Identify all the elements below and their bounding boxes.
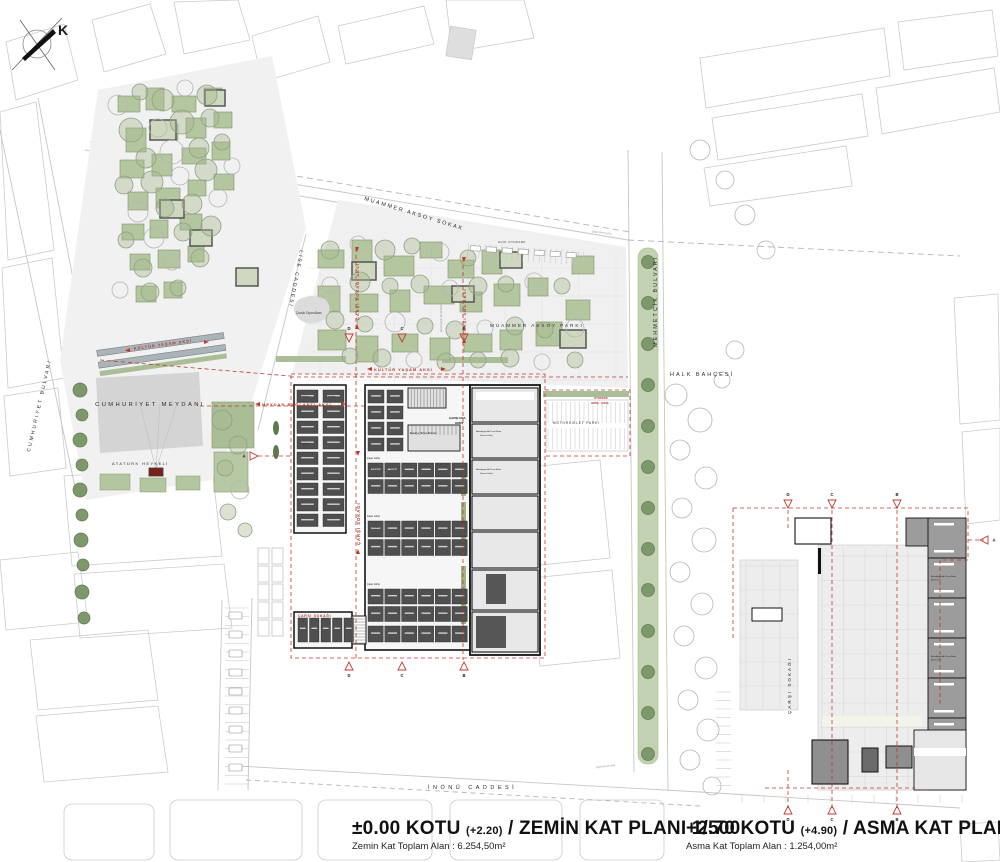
section-marker-icon	[398, 662, 406, 670]
tree-icon	[735, 205, 755, 225]
tree-icon	[417, 318, 433, 334]
caption-zemin-title: ±0.00 KOTU (+2.20) / ZEMİN KAT PLANI 1/5…	[352, 818, 740, 840]
place-label-oyun-alani: Çocuk Oyun Alanı	[296, 311, 322, 315]
section-marker-icon	[250, 452, 258, 460]
tree-icon	[73, 483, 87, 497]
car-icon	[229, 688, 242, 695]
section-marker-letter: D	[347, 326, 350, 331]
unit-counter	[371, 613, 380, 614]
tree-icon	[141, 171, 163, 193]
planted-bed	[214, 174, 234, 190]
context-stall	[272, 602, 283, 618]
tree-icon	[76, 509, 88, 521]
unit-counter	[421, 613, 430, 614]
planted-bed	[464, 334, 492, 352]
shop-unit	[385, 521, 400, 537]
car-icon	[229, 764, 242, 771]
context-stall	[272, 620, 283, 636]
car-icon	[229, 631, 242, 638]
unit-counter	[327, 442, 340, 443]
unit-label-dukkan-6: Dükkan	[372, 527, 380, 529]
zemin-kot: ±0.00 KOTU	[352, 818, 461, 839]
car-icon	[518, 249, 528, 255]
section-marker-letter: C	[400, 673, 403, 678]
unit-counter	[327, 426, 340, 427]
tree-icon	[695, 467, 717, 489]
shop-unit	[402, 626, 417, 642]
tree-icon	[201, 109, 219, 127]
car-icon	[229, 726, 242, 733]
small-blocks	[258, 548, 283, 636]
entrance-label-carsi-girisi-3: Çarşı Girişi	[367, 582, 380, 586]
tree-icon	[197, 85, 217, 105]
axis-label-meydan-baglanti: MEYDAN BAĞLANTI AKSI	[262, 402, 332, 407]
unit-counter	[421, 632, 430, 633]
unit-counter	[346, 628, 352, 629]
section-marker	[345, 662, 353, 670]
unit-counter	[438, 469, 447, 470]
section-marker-letter: A	[242, 454, 245, 459]
tree-icon	[382, 278, 398, 294]
place-label-aksoy-parki: MUAMMER AKSOY PARKI	[490, 323, 584, 328]
tree-icon	[642, 666, 655, 679]
unit-counter	[421, 546, 430, 547]
unit-counter	[334, 628, 340, 629]
tree-icon	[238, 523, 252, 537]
tree-icon	[554, 278, 570, 294]
section-marker	[893, 500, 901, 508]
unit-label-asma-2: Asma Kat	[931, 579, 941, 582]
unit-counter	[301, 473, 314, 474]
tree-icon	[642, 543, 655, 556]
planted-bed	[482, 250, 502, 274]
unit-counter	[934, 723, 954, 726]
planted-bed	[318, 330, 346, 350]
unit-counter	[371, 632, 380, 633]
section-marker	[398, 662, 406, 670]
unit-counter	[438, 485, 447, 486]
tree-icon	[195, 159, 217, 181]
car-icon	[229, 612, 242, 619]
unit-counter	[388, 613, 397, 614]
tree-icon	[170, 280, 186, 296]
tree-icon	[77, 559, 89, 571]
tree-icon	[134, 259, 152, 277]
tree-icon	[74, 533, 88, 547]
street-label-carsi-sokagi-branch: ÇARŞI SOKAĞI	[298, 613, 331, 618]
unit-label-dukkan-3: Dükkan	[302, 443, 310, 445]
tree-icon	[437, 353, 455, 371]
place-label-heykel: ATATÜRK HEYKELİ	[112, 461, 169, 466]
unit-counter	[405, 546, 414, 547]
tree-icon	[76, 459, 88, 471]
tree-icon	[73, 433, 87, 447]
park-structure	[500, 252, 522, 268]
unit-counter	[327, 488, 340, 489]
unit-counter	[371, 395, 381, 396]
caption-asma-kat: +2.70 KOTU (+4.90) / ASMA KAT PLANI 1/50…	[686, 818, 1000, 852]
shop-unit	[344, 618, 354, 642]
shop-unit	[402, 521, 417, 537]
car-icon	[550, 251, 560, 257]
place-label-sergi-alani: Geçici Açık Sergi Alanı	[439, 304, 443, 332]
shop-unit	[385, 626, 400, 642]
section-marker-letter: C	[400, 326, 403, 331]
tree-icon	[695, 657, 717, 679]
section-marker	[460, 662, 468, 670]
unit-counter	[311, 628, 317, 629]
shop-unit	[435, 540, 450, 556]
unit-label-asma: Belediyeye Ait Ticari Birim	[931, 575, 956, 578]
unit-counter	[934, 630, 954, 633]
park-structure	[236, 268, 258, 286]
section-marker-icon	[345, 662, 353, 670]
unit-counter	[371, 595, 380, 596]
tree-icon	[326, 311, 344, 329]
shop-unit	[418, 589, 433, 604]
context-stall	[272, 548, 283, 564]
unit-label-ticari-2a: Belediyeye Ait Ticari Birim	[476, 468, 501, 471]
section-marker-icon	[784, 500, 792, 508]
shop-unit	[402, 589, 417, 604]
unit-counter	[301, 488, 314, 489]
unit-counter	[301, 411, 314, 412]
tree-icon	[642, 461, 655, 474]
tree-icon	[672, 498, 692, 518]
shop-unit	[452, 589, 467, 604]
entrance-label-otopark-1: OTOPARK	[594, 396, 608, 400]
unit-counter	[438, 546, 447, 547]
unit-counter	[405, 632, 414, 633]
section-marker-letter: A	[992, 538, 995, 543]
shop-unit	[435, 521, 450, 537]
planted-bed	[424, 286, 454, 304]
car-icon	[229, 669, 242, 676]
unit-counter	[327, 473, 340, 474]
tree-icon	[119, 118, 143, 142]
car-icon	[470, 246, 480, 252]
context-stall	[272, 584, 283, 600]
axis-label-kultur-2: KÜLTÜR YAŞAM AKSI	[374, 367, 433, 372]
unit-label-asma-2: Asma Kat	[931, 659, 941, 662]
shop-unit	[298, 618, 308, 642]
car-icon	[229, 745, 242, 752]
unit-counter	[934, 550, 954, 553]
unit-counter	[388, 546, 397, 547]
shop-unit	[368, 626, 383, 642]
place-label-halk-bahcesi: HALK BAHÇESİ	[670, 371, 734, 378]
planted-bed	[172, 96, 196, 112]
asma-kot: +2.70 KOTU	[686, 818, 795, 839]
unit-label-ticari-1b: (Servis Kafe)	[480, 434, 493, 437]
shop-unit	[418, 521, 433, 537]
tree-icon	[697, 719, 719, 741]
unit-counter	[934, 563, 954, 566]
section-marker-icon	[828, 500, 836, 508]
context-stall	[258, 584, 269, 600]
tree-icon	[75, 585, 89, 599]
entrance-label-carsi-girisi-1: Çarşı Girişi	[367, 456, 380, 460]
tree-icon	[469, 277, 487, 295]
unit-counter	[301, 519, 314, 520]
tree-icon	[670, 562, 690, 582]
tree-icon	[156, 199, 174, 217]
unit-counter	[390, 443, 400, 444]
shop-unit	[385, 540, 400, 556]
unit-counter	[438, 613, 447, 614]
street-label-inonu: İNÖNÜ CADDESİ	[428, 784, 517, 791]
tree-icon	[642, 707, 655, 720]
tree-icon	[691, 593, 713, 615]
unit-counter	[371, 546, 380, 547]
unit-label-dukkan-5: Dükkan	[390, 469, 398, 471]
section-marker	[250, 452, 258, 460]
unit-counter	[934, 590, 954, 593]
street-label-mehmetcik: MEHMETÇİK BULVARI	[652, 256, 659, 347]
shop-unit	[452, 540, 467, 556]
tree-icon	[642, 420, 655, 433]
tree-icon	[350, 272, 370, 292]
shop-unit	[402, 540, 417, 556]
tree-icon	[191, 249, 209, 267]
car-icon	[229, 707, 242, 714]
unit-label-asma: Belediyeye Ait Ticari Birim	[931, 655, 956, 658]
tree-icon	[678, 690, 698, 710]
asma-title-rest: / ASMA KAT PLANI 1/500	[843, 818, 1000, 839]
tree-icon	[73, 383, 87, 397]
shop-unit	[402, 607, 417, 622]
shop-unit	[418, 607, 433, 622]
unit-counter	[327, 519, 340, 520]
unit-counter	[405, 595, 414, 596]
context-stall	[258, 620, 269, 636]
unit-counter	[300, 628, 306, 629]
shop-unit	[368, 589, 383, 604]
context-stall	[258, 548, 269, 564]
unit-counter	[388, 632, 397, 633]
shop-unit	[385, 607, 400, 622]
tree-icon	[642, 379, 655, 392]
shop-unit	[452, 607, 467, 622]
unit-label-dukkan-4: Dükkan	[372, 469, 380, 471]
shop-unit	[333, 618, 343, 642]
road-label-yaya-2: yaya çevre yolu	[596, 763, 616, 769]
shop-unit	[452, 521, 467, 537]
section-marker	[784, 500, 792, 508]
street-label-carsi-sokagi-main: ÇARŞI SOKAĞI	[356, 502, 361, 545]
unit-counter	[405, 527, 414, 528]
unit-counter	[301, 457, 314, 458]
unit-counter	[323, 628, 329, 629]
caption-asma-title: +2.70 KOTU (+4.90) / ASMA KAT PLANI 1/50…	[686, 818, 1000, 840]
mezzanine-room	[906, 518, 930, 546]
unit-counter	[327, 457, 340, 458]
unit-counter	[371, 443, 381, 444]
axis-label-carsi-ana: ÇARŞI ANA AKSI	[462, 289, 467, 335]
tree-icon	[212, 410, 232, 430]
tree-icon	[688, 408, 712, 432]
tree-icon	[670, 440, 690, 460]
unit-counter	[934, 643, 954, 646]
unit-counter	[934, 523, 954, 526]
tree-icon	[115, 176, 133, 194]
tree-icon	[498, 276, 514, 292]
section-marker-icon	[460, 662, 468, 670]
unit-label-dukkan-2: Dükkan	[328, 396, 336, 398]
shop-unit	[435, 626, 450, 642]
entrance-label-carsi-girisi-2: Çarşı Girişi	[367, 514, 380, 518]
place-label-acik-otopark: AÇIK OTOPARK	[498, 240, 526, 244]
tree-icon	[690, 140, 710, 160]
unit-counter	[371, 485, 380, 486]
car-icon	[534, 250, 544, 256]
unit-counter	[421, 485, 430, 486]
section-marker-letter: B	[462, 673, 465, 678]
tree-icon	[132, 84, 148, 100]
planted-bed	[128, 192, 148, 210]
tree-icon	[404, 238, 420, 254]
shop-unit	[310, 618, 320, 642]
planted-bed	[188, 180, 206, 196]
section-marker	[828, 500, 836, 508]
caption-asma-area: Asma Kat Toplam Alan : 1.254,00m²	[686, 841, 1000, 852]
entrance-label-ana-giris-1: ÇARŞI ANA	[449, 416, 466, 420]
car-icon	[502, 248, 512, 254]
tree-icon	[170, 110, 194, 134]
tree-icon	[642, 748, 655, 761]
tree-icon	[136, 148, 156, 168]
tree-icon	[567, 352, 583, 368]
context-stall	[272, 566, 283, 582]
street-label-carsi-sokagi-right: ÇARŞI SOKAĞI	[786, 657, 792, 714]
unit-counter	[390, 427, 400, 428]
shop-unit	[418, 626, 433, 642]
tree-icon	[78, 612, 90, 624]
unit-counter	[405, 485, 414, 486]
entrance-label-ana-giris-2: GİRİŞ	[455, 420, 463, 425]
tree-icon	[214, 134, 230, 150]
park-structure	[560, 330, 586, 348]
tree-icon	[665, 384, 687, 406]
unit-counter	[421, 469, 430, 470]
tree-icon	[411, 275, 429, 293]
unit-counter	[327, 504, 340, 505]
tree-icon	[76, 409, 88, 421]
unit-counter	[371, 411, 381, 412]
tree-icon	[642, 502, 655, 515]
tree-icon	[174, 223, 192, 241]
tree-icon	[501, 349, 519, 367]
car-icon	[566, 252, 576, 258]
tree-icon	[321, 241, 339, 259]
unit-counter	[388, 527, 397, 528]
tree-icon	[680, 750, 700, 770]
unit-counter	[438, 527, 447, 528]
unit-counter	[390, 411, 400, 412]
unit-counter	[327, 411, 340, 412]
tree-icon	[373, 349, 391, 367]
shop-unit	[368, 521, 383, 537]
tree-icon	[342, 348, 358, 364]
unit-counter	[371, 427, 381, 428]
unit-counter	[455, 613, 464, 614]
unit-counter	[934, 670, 954, 673]
shop-unit	[418, 540, 433, 556]
tree-icon	[229, 436, 247, 454]
planted-bed	[528, 278, 548, 296]
unit-counter	[421, 527, 430, 528]
tree-icon	[152, 89, 174, 111]
section-marker-letter: B	[895, 492, 898, 497]
planted-bed	[566, 300, 590, 320]
unit-label-dukkan-1: Dükkan	[302, 396, 310, 398]
unit-counter	[934, 683, 954, 686]
context-stall	[258, 566, 269, 582]
planted-bed	[158, 250, 180, 268]
unit-counter	[301, 426, 314, 427]
place-label-meydan: CUMHURİYET MEYDANI	[95, 401, 205, 408]
section-marker-icon	[893, 500, 901, 508]
shop-unit	[452, 626, 467, 642]
compass-letter: K	[58, 22, 68, 38]
unit-label-belediye-hizmet: Belediye Hizmet Birimleri	[410, 432, 437, 435]
tree-icon	[217, 460, 233, 476]
entrance-label-otopark-2: GİRİŞ - ÇIKIŞ	[591, 400, 609, 405]
shop-unit	[321, 618, 331, 642]
unit-counter	[388, 485, 397, 486]
plan-drawing: Belediyeye Ait Ticari BirimAsma KatBeled…	[0, 0, 1000, 862]
caption-zemin-area: Zemin Kat Toplam Alan : 6.254,50m²	[352, 841, 740, 852]
tree-icon	[726, 341, 744, 359]
place-label-moto-park: MOTORSİKLET PARKI	[553, 420, 600, 425]
tree-icon	[692, 528, 716, 552]
tree-icon	[201, 216, 221, 236]
shop-unit	[435, 607, 450, 622]
shop-unit	[368, 540, 383, 556]
tree-icon	[118, 232, 134, 248]
tree-icon	[642, 625, 655, 638]
context-stall	[258, 602, 269, 618]
section-marker-letter: D	[786, 492, 789, 497]
playground-area	[294, 296, 330, 324]
shop-unit	[368, 607, 383, 622]
car-icon	[486, 247, 496, 253]
unit-counter	[388, 595, 397, 596]
tree-icon	[642, 584, 655, 597]
tree-icon	[757, 241, 775, 259]
tree-icon	[460, 250, 476, 266]
unit-counter	[405, 613, 414, 614]
shop-unit	[385, 589, 400, 604]
tree-icon	[674, 626, 694, 646]
section-marker-letter: C	[830, 492, 833, 497]
unit-counter	[301, 504, 314, 505]
unit-counter	[390, 395, 400, 396]
unit-counter	[438, 632, 447, 633]
tree-icon	[182, 194, 202, 214]
unit-label-ticari-1a: Belediyeye Ait Ticari Birim	[476, 430, 501, 433]
unit-label-ticari-2b: (Servis Kafe)	[480, 472, 493, 475]
cumhuriyet-square	[96, 372, 203, 453]
unit-counter	[934, 603, 954, 606]
zemin-level: (+2.20)	[466, 825, 503, 837]
unit-counter	[934, 710, 954, 713]
tree-icon	[470, 352, 486, 368]
tree-icon	[189, 138, 209, 158]
unit-counter	[421, 595, 430, 596]
axis-label-carsi-sokagi: ÇARŞI SOKAĞI AKSI	[355, 263, 360, 320]
tree-icon	[141, 283, 159, 301]
